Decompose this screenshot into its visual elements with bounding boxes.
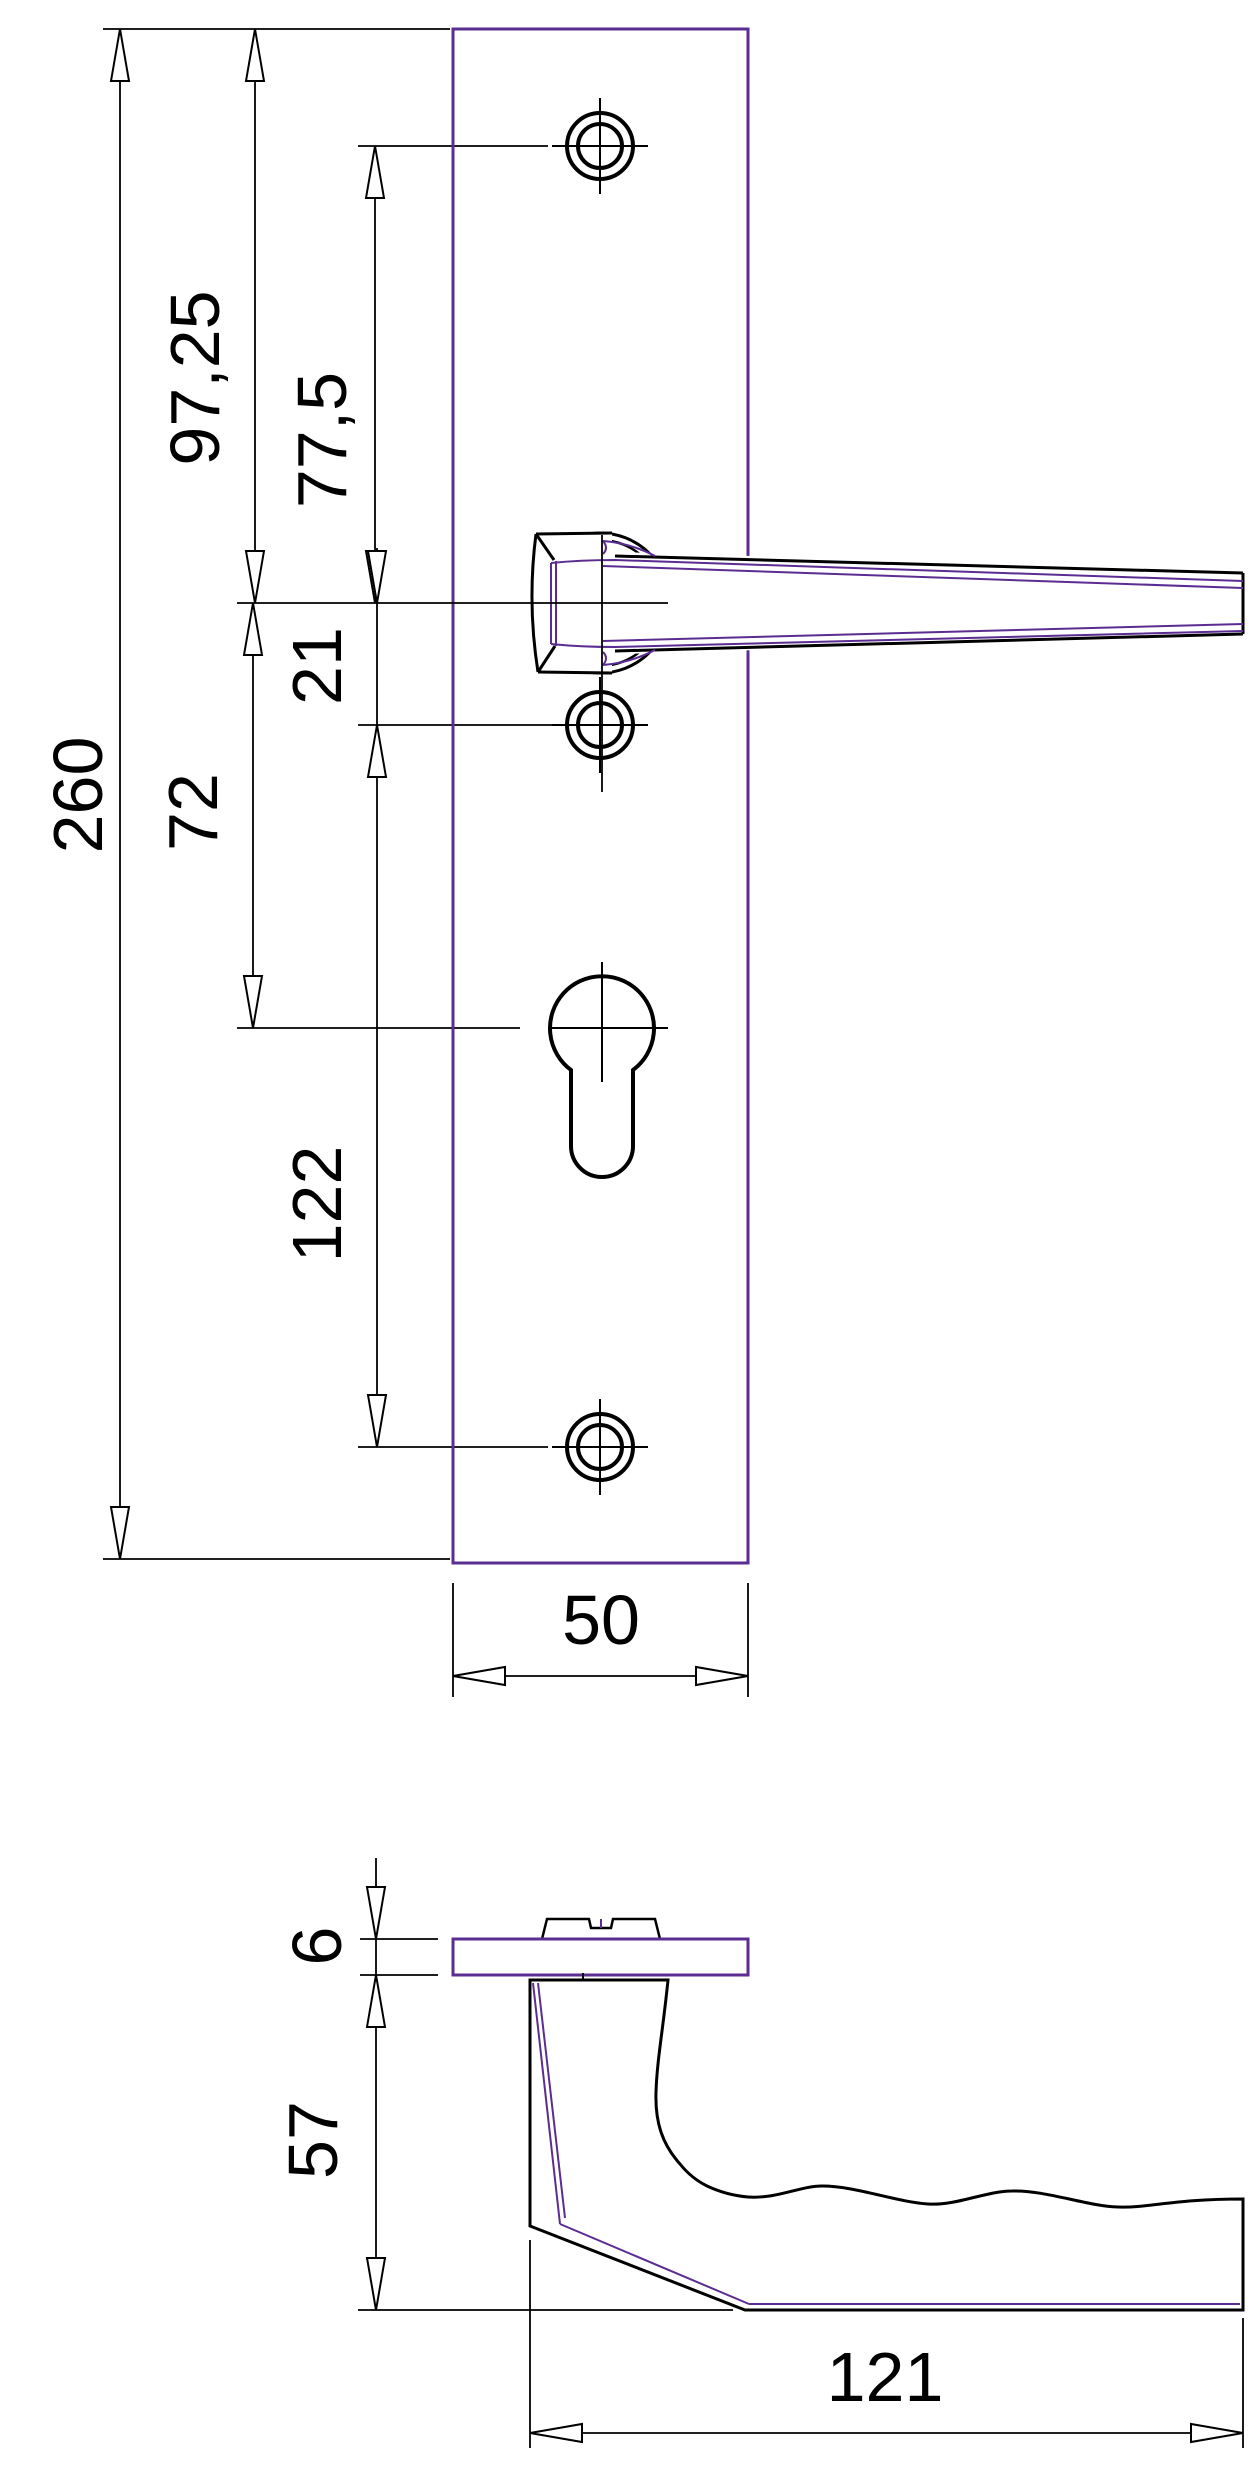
- dim-label-plate-top-to-handle: 97,25: [160, 290, 230, 465]
- dim-label-overall-height: 260: [43, 737, 113, 854]
- dim-label-handle-projection: 57: [278, 2101, 348, 2179]
- handle-profile: [530, 1973, 1243, 2310]
- dim-label-plate-width: 50: [562, 1585, 640, 1655]
- extension-lines: [103, 29, 1243, 2448]
- dim-label-handle-length: 121: [827, 2342, 944, 2412]
- euro-cylinder-hole: [548, 962, 668, 1177]
- plate-section: [453, 1939, 748, 1975]
- screw-hole-bottom: [552, 1399, 648, 1495]
- screw-hole-middle: [552, 677, 648, 773]
- spindle-collar: [542, 1919, 660, 1939]
- dim-label-screw-to-handle: 77,5: [287, 372, 357, 508]
- backplate-outline: [453, 29, 748, 1563]
- side-view: [453, 1919, 1243, 2310]
- technical-drawing-canvas: 260 97,25 77,5 21 72 122 50 6 57 121: [0, 0, 1254, 2479]
- dim-label-mid-to-bottom-screw: 122: [282, 1146, 352, 1263]
- front-view: [237, 29, 1246, 1563]
- dim-label-handle-to-cylinder: 72: [158, 773, 228, 851]
- dim-label-handle-to-mid-screw: 21: [282, 627, 352, 705]
- screw-hole-top: [552, 98, 648, 194]
- dim-label-plate-thickness: 6: [282, 1927, 352, 1966]
